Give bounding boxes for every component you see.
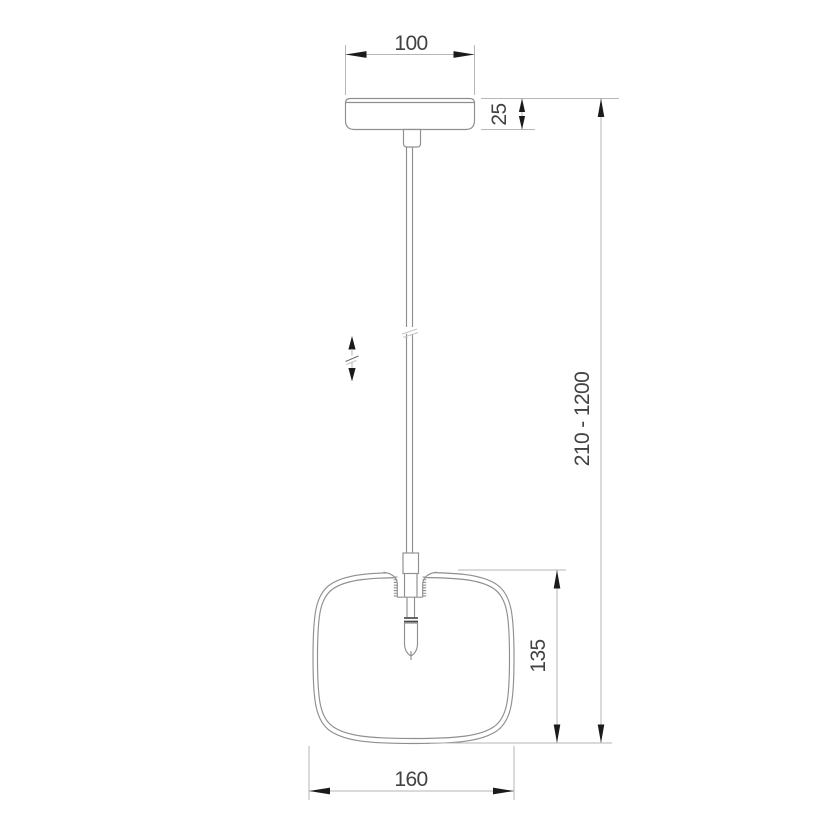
socket-assembly — [383, 553, 437, 617]
canopy-body — [346, 99, 475, 130]
adjust-down-arrowhead — [348, 368, 355, 382]
led-bulb — [404, 618, 418, 660]
arrowhead-down — [519, 116, 525, 130]
dim-overall-height-label: 210 - 1200 — [571, 372, 594, 466]
adjust-up-arrowhead — [348, 336, 355, 350]
shade-inner-outline — [318, 578, 510, 739]
arrowhead-down — [554, 725, 561, 744]
arrowhead-up — [598, 99, 605, 118]
arrowhead-down — [598, 725, 605, 744]
arrowhead-up — [519, 99, 525, 113]
arrowhead-left — [309, 788, 330, 795]
bulb-cylinder — [405, 623, 418, 644]
arrowhead-right — [454, 51, 475, 58]
canopy-connector — [404, 130, 421, 148]
drawing-canvas: 100 25 210 - 1200 135 160 — [0, 0, 838, 838]
height-adjustable-icon — [346, 336, 359, 382]
dimension-canopy-width: 100 — [346, 32, 475, 95]
suspension-rod — [402, 147, 418, 553]
arrowhead-left — [346, 51, 367, 58]
dim-shade-width-label: 160 — [394, 768, 427, 791]
socket-block — [403, 553, 419, 574]
dimension-shade-width: 160 — [309, 746, 514, 800]
arrowhead-up — [554, 570, 561, 589]
dim-canopy-width-label: 100 — [394, 32, 427, 55]
ceiling-canopy — [346, 99, 475, 148]
pendant-lamp-technical-drawing: 100 25 210 - 1200 135 160 — [0, 0, 838, 838]
dimension-shade-height: 135 — [430, 570, 612, 743]
dim-shade-height-label: 135 — [527, 639, 550, 672]
dimension-overall-height: 210 - 1200 — [571, 99, 604, 744]
arrowhead-right — [493, 788, 514, 795]
dim-canopy-height-label: 25 — [488, 103, 511, 125]
